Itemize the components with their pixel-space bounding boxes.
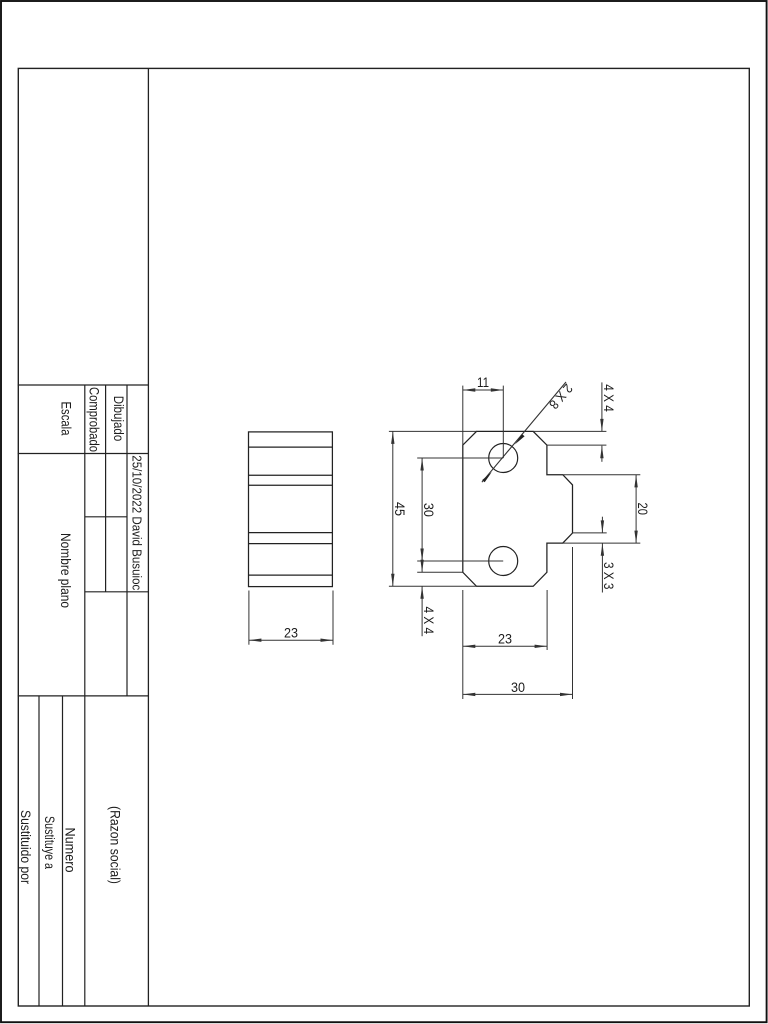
svg-text:Sustituido por: Sustituido por bbox=[18, 810, 33, 884]
svg-text:Numero: Numero bbox=[63, 828, 78, 873]
svg-text:4 X 4: 4 X 4 bbox=[421, 607, 436, 635]
svg-text:(Razon social): (Razon social) bbox=[108, 806, 123, 884]
svg-text:23: 23 bbox=[284, 625, 298, 640]
svg-text:23: 23 bbox=[498, 632, 512, 647]
svg-text:11: 11 bbox=[477, 375, 489, 390]
svg-text:Escala: Escala bbox=[59, 402, 74, 436]
svg-text:4 X 4: 4 X 4 bbox=[601, 384, 616, 412]
svg-text:3 X 3: 3 X 3 bbox=[601, 562, 616, 590]
svg-text:30: 30 bbox=[421, 503, 436, 517]
svg-text:Dibujado: Dibujado bbox=[111, 396, 126, 442]
svg-text:20: 20 bbox=[635, 502, 650, 515]
svg-text:25/10/2022 David Busuioc: 25/10/2022 David Busuioc bbox=[130, 455, 145, 590]
svg-text:30: 30 bbox=[511, 680, 525, 695]
svg-text:Comprobado: Comprobado bbox=[87, 387, 102, 452]
svg-text:45: 45 bbox=[392, 502, 407, 516]
svg-text:Sustituye a: Sustituye a bbox=[42, 816, 57, 869]
svg-text:Nombre plano: Nombre plano bbox=[58, 533, 73, 608]
